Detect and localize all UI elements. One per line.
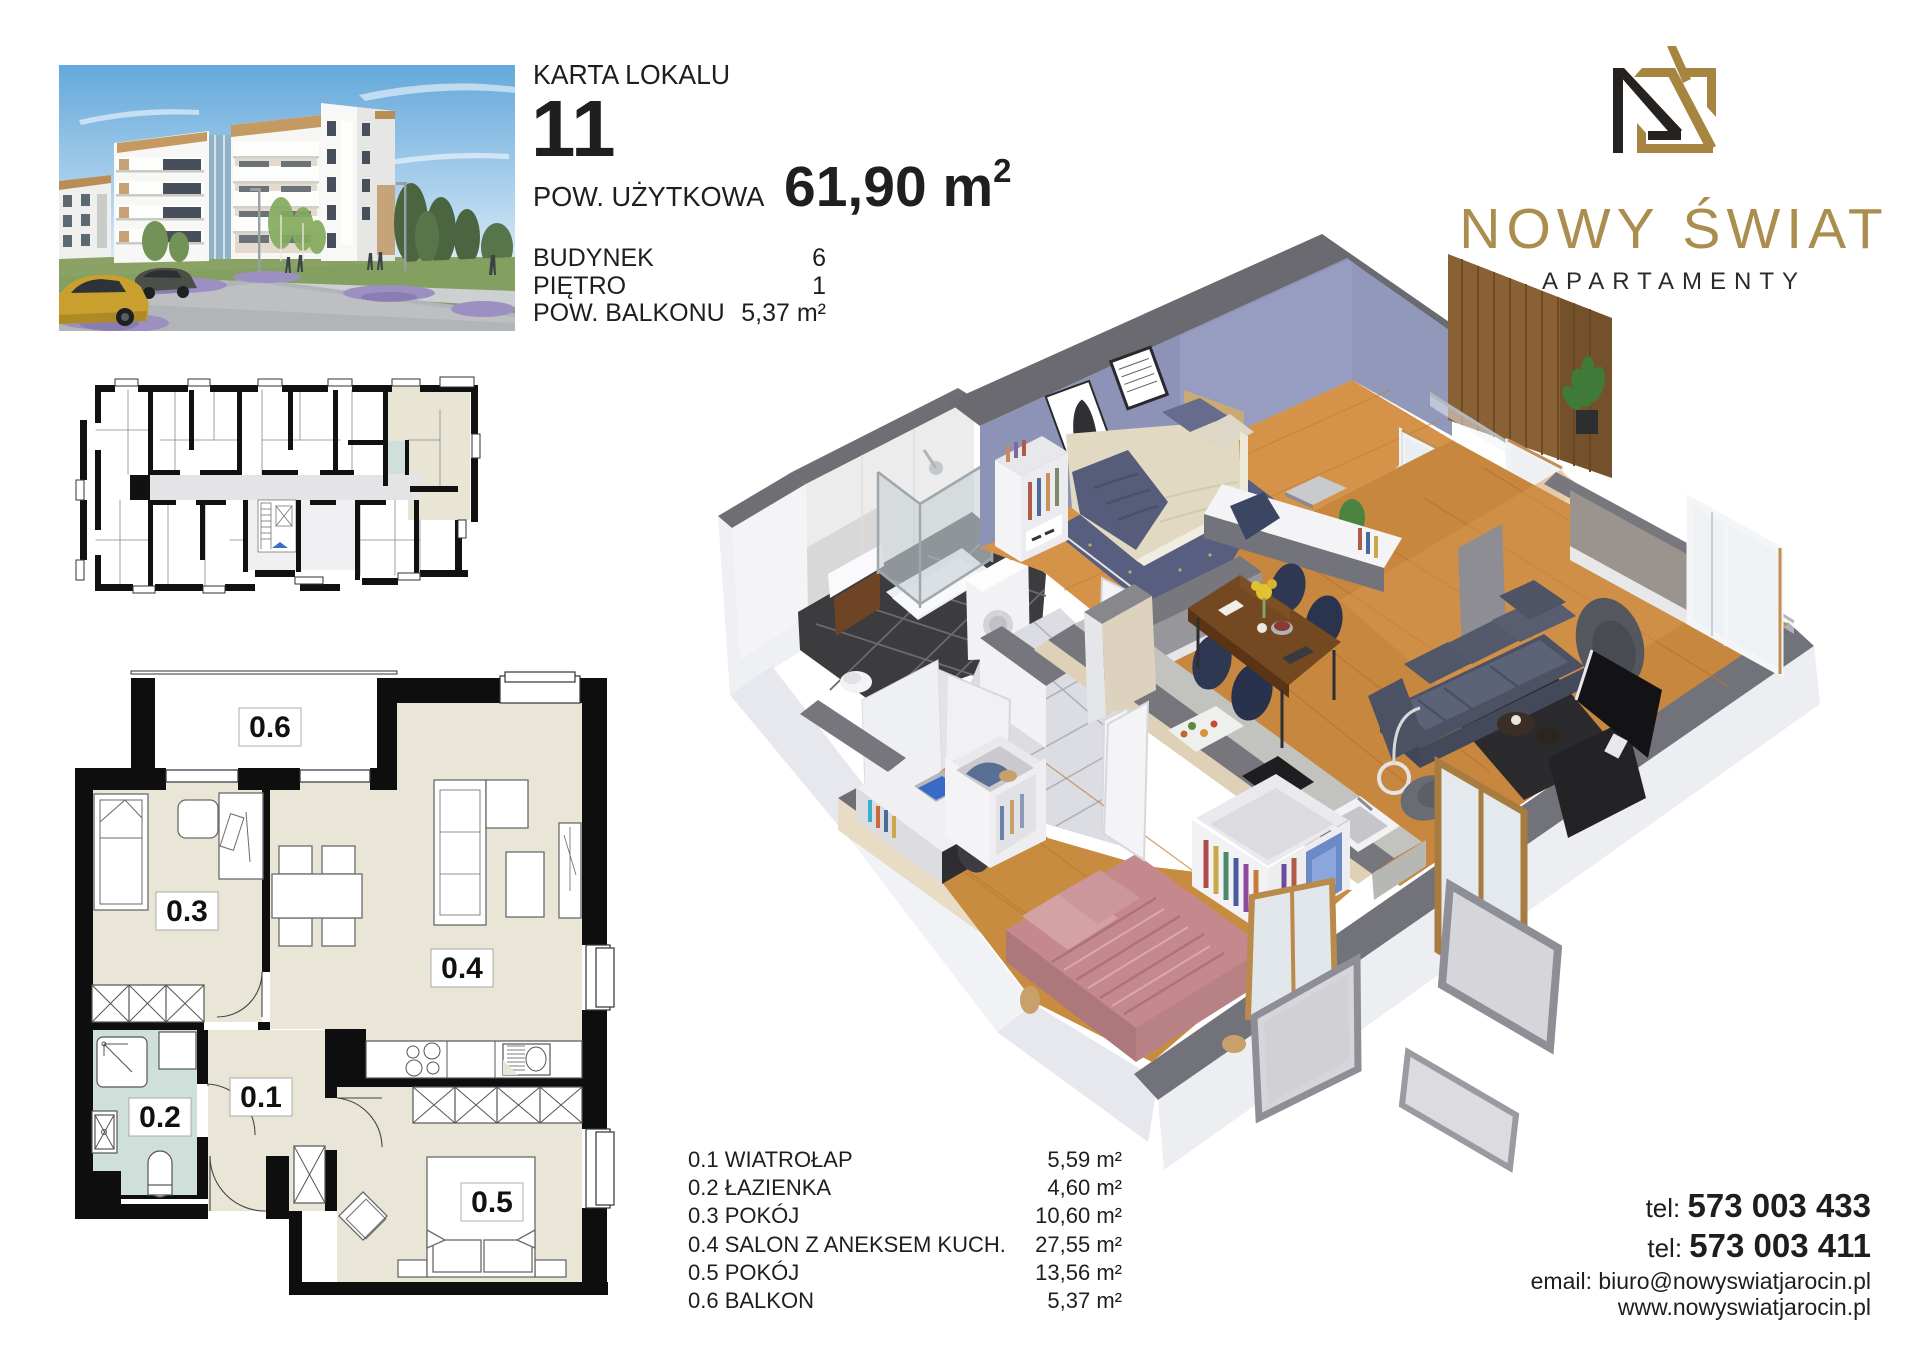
svg-text:0.4: 0.4 [441, 952, 483, 985]
svg-text:0.6: 0.6 [249, 711, 291, 744]
svg-text:0.3: 0.3 [166, 895, 208, 928]
svg-text:0.1: 0.1 [240, 1081, 282, 1114]
svg-text:0.2: 0.2 [139, 1101, 181, 1134]
svg-text:0.5: 0.5 [471, 1186, 513, 1219]
